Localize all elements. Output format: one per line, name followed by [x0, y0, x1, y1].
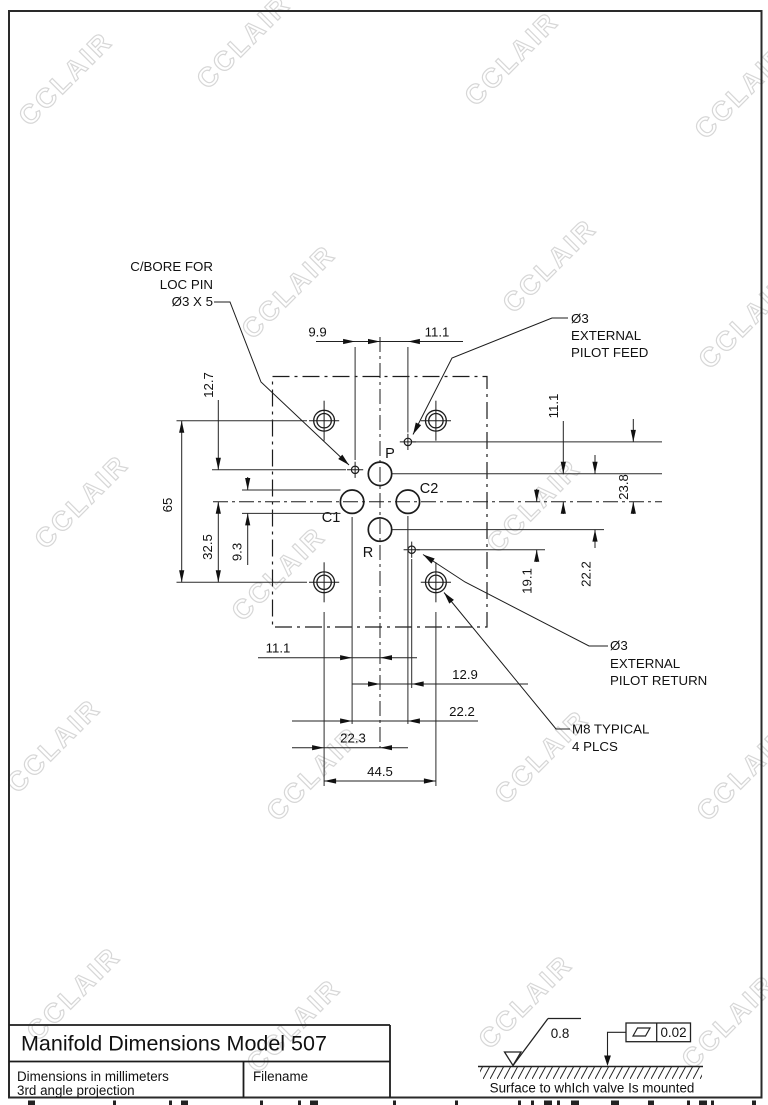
- watermark-text: CCLAIR: [689, 39, 768, 145]
- pilot-feed-note: Ø3 EXTERNAL PILOT FEED: [571, 311, 648, 360]
- watermark-text: CCLAIR: [226, 521, 332, 627]
- small-holes-group: [347, 434, 420, 558]
- port-p-label: P: [385, 446, 395, 462]
- roughness-value: 0.8: [551, 1026, 570, 1041]
- dimension-labels: 9.9 11.1 11.1 12.9 22.2 22.3 44.5 65 12.…: [160, 325, 631, 780]
- dim-top-9-9: 9.9: [308, 325, 326, 340]
- cbore-note-line1: C/BORE FOR: [130, 259, 213, 274]
- drawing-title: Manifold Dimensions Model 507: [21, 1032, 327, 1056]
- flatness-leader: [608, 1032, 627, 1058]
- pilot-feed-note-line3: PILOT FEED: [571, 345, 648, 360]
- bolt-hole-top-right: [421, 401, 451, 441]
- title-block: Manifold Dimensions Model 507 Dimensions…: [9, 1025, 390, 1098]
- dim-bottom-12-9: 12.9: [452, 667, 478, 682]
- flatness-callout: 0.02: [604, 1023, 690, 1066]
- watermark-text: CCLAIR: [1, 693, 107, 799]
- watermark-layer: CCLAIR CCLAIR CCLAIR CCLAIR CCLAIR CCLAI…: [1, 0, 768, 1079]
- units-note: Dimensions in millimeters: [17, 1069, 169, 1084]
- pilot-return-note-line3: PILOT RETURN: [610, 673, 707, 688]
- port-c1-label: C1: [322, 510, 341, 526]
- technical-drawing-canvas: CCLAIR CCLAIR CCLAIR CCLAIR CCLAIR CCLAI…: [0, 0, 768, 1105]
- dim-left-12-7: 12.7: [201, 372, 216, 398]
- page-border: [9, 11, 762, 1098]
- dim-left-65: 65: [160, 498, 175, 513]
- port-c2-label: C2: [420, 481, 439, 497]
- dim-bottom-22-2: 22.2: [449, 704, 475, 719]
- loc-pin-hole: [347, 462, 363, 478]
- cbore-note-line2: LOC PIN: [160, 277, 213, 292]
- watermark-text: CCLAIR: [459, 6, 565, 112]
- flatness-value: 0.02: [660, 1025, 686, 1040]
- surface-caption: Surface to whIch valve Is mounted: [490, 1081, 695, 1096]
- m8-note: M8 TYPICAL 4 PLCS: [572, 722, 649, 755]
- watermark-text: CCLAIR: [676, 969, 768, 1075]
- dim-right-23-8: 23.8: [616, 474, 631, 500]
- filename-label: Filename: [253, 1069, 308, 1084]
- dim-bottom-44-5: 44.5: [367, 764, 393, 779]
- dim-right-11-1: 11.1: [546, 394, 561, 419]
- dim-right-19-1: 19.1: [520, 568, 535, 594]
- cbore-note: C/BORE FOR LOC PIN Ø3 X 5: [130, 259, 213, 309]
- watermark-text: CCLAIR: [497, 213, 603, 319]
- port-r-label: R: [363, 545, 373, 561]
- pilot-return-note: Ø3 EXTERNAL PILOT RETURN: [610, 638, 707, 688]
- watermark-text: CCLAIR: [691, 721, 768, 827]
- pilot-feed-note-line2: EXTERNAL: [571, 328, 641, 343]
- cbore-note-line3: Ø3 X 5: [172, 294, 213, 309]
- flatness-leader-arrow: [604, 1056, 611, 1067]
- watermark-text: CCLAIR: [13, 26, 119, 132]
- watermark-text: CCLAIR: [489, 704, 595, 810]
- surface-hatching: [480, 1067, 702, 1079]
- dim-top-11-1: 11.1: [425, 325, 450, 340]
- bolt-hole-top-left: [309, 401, 339, 441]
- watermark-text: CCLAIR: [693, 269, 768, 375]
- pilot-feed-note-line1: Ø3: [571, 311, 589, 326]
- dim-bottom-22-3: 22.3: [340, 731, 366, 746]
- dim-left-32-5: 32.5: [200, 534, 215, 560]
- m8-note-line1: M8 TYPICAL: [572, 722, 649, 737]
- bolt-hole-bottom-left: [309, 562, 339, 602]
- pilot-return-note-line1: Ø3: [610, 638, 628, 653]
- dim-right-22-2: 22.2: [579, 561, 594, 587]
- projection-note: 3rd angle projection: [17, 1083, 135, 1098]
- dim-bottom-11-1: 11.1: [266, 641, 291, 656]
- cut-off-text-fragments: [28, 1101, 756, 1105]
- watermark-text: CCLAIR: [29, 449, 135, 555]
- watermark-text: CCLAIR: [191, 0, 297, 95]
- m8-note-line2: 4 PLCS: [572, 739, 618, 754]
- dim-left-9-3: 9.3: [230, 543, 245, 561]
- drawing-page: CCLAIR CCLAIR CCLAIR CCLAIR CCLAIR CCLAI…: [0, 0, 768, 1105]
- watermark-text: CCLAIR: [481, 453, 587, 559]
- pilot-return-note-line2: EXTERNAL: [610, 656, 680, 671]
